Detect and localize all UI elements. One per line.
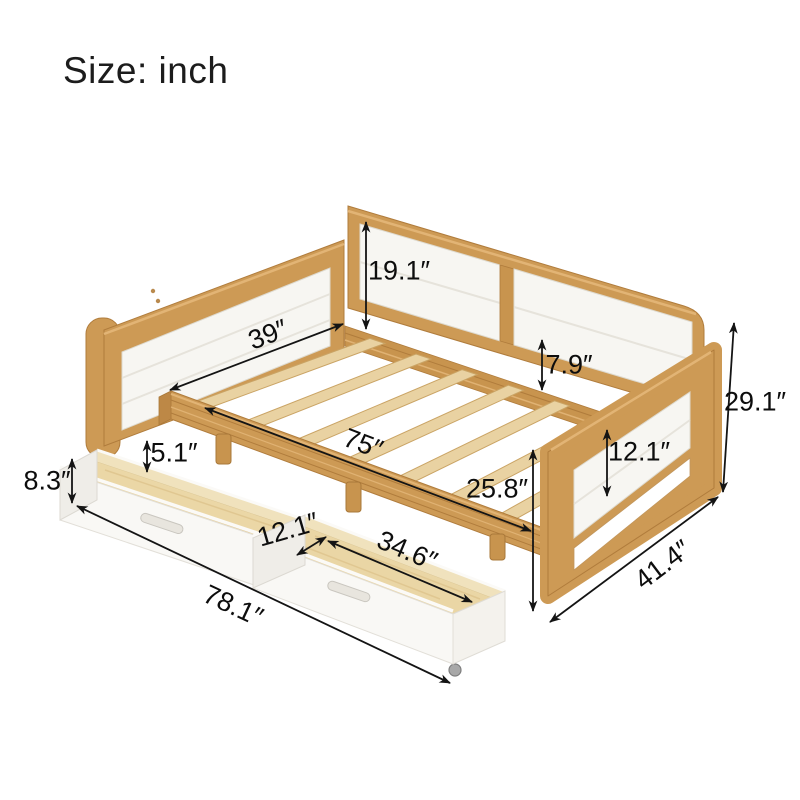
dim-label-drawer-inner-height: 5.1″: [150, 438, 197, 469]
page-title: Size: inch: [63, 50, 228, 92]
dim-label-overall-height: 29.1″: [724, 387, 786, 418]
bed-illustration: [0, 0, 800, 800]
dim-label-arm-panel-height: 12.1″: [608, 437, 670, 468]
dimension-diagram: Size: inch: [0, 0, 800, 800]
dim-label-rail-to-slat-gap: 7.9″: [545, 350, 592, 381]
dim-label-frame-side-height: 25.8″: [466, 474, 528, 505]
dim-label-backrest-panel-height: 19.1″: [368, 256, 430, 287]
dim-label-drawer-outer-height: 8.3″: [23, 466, 70, 497]
